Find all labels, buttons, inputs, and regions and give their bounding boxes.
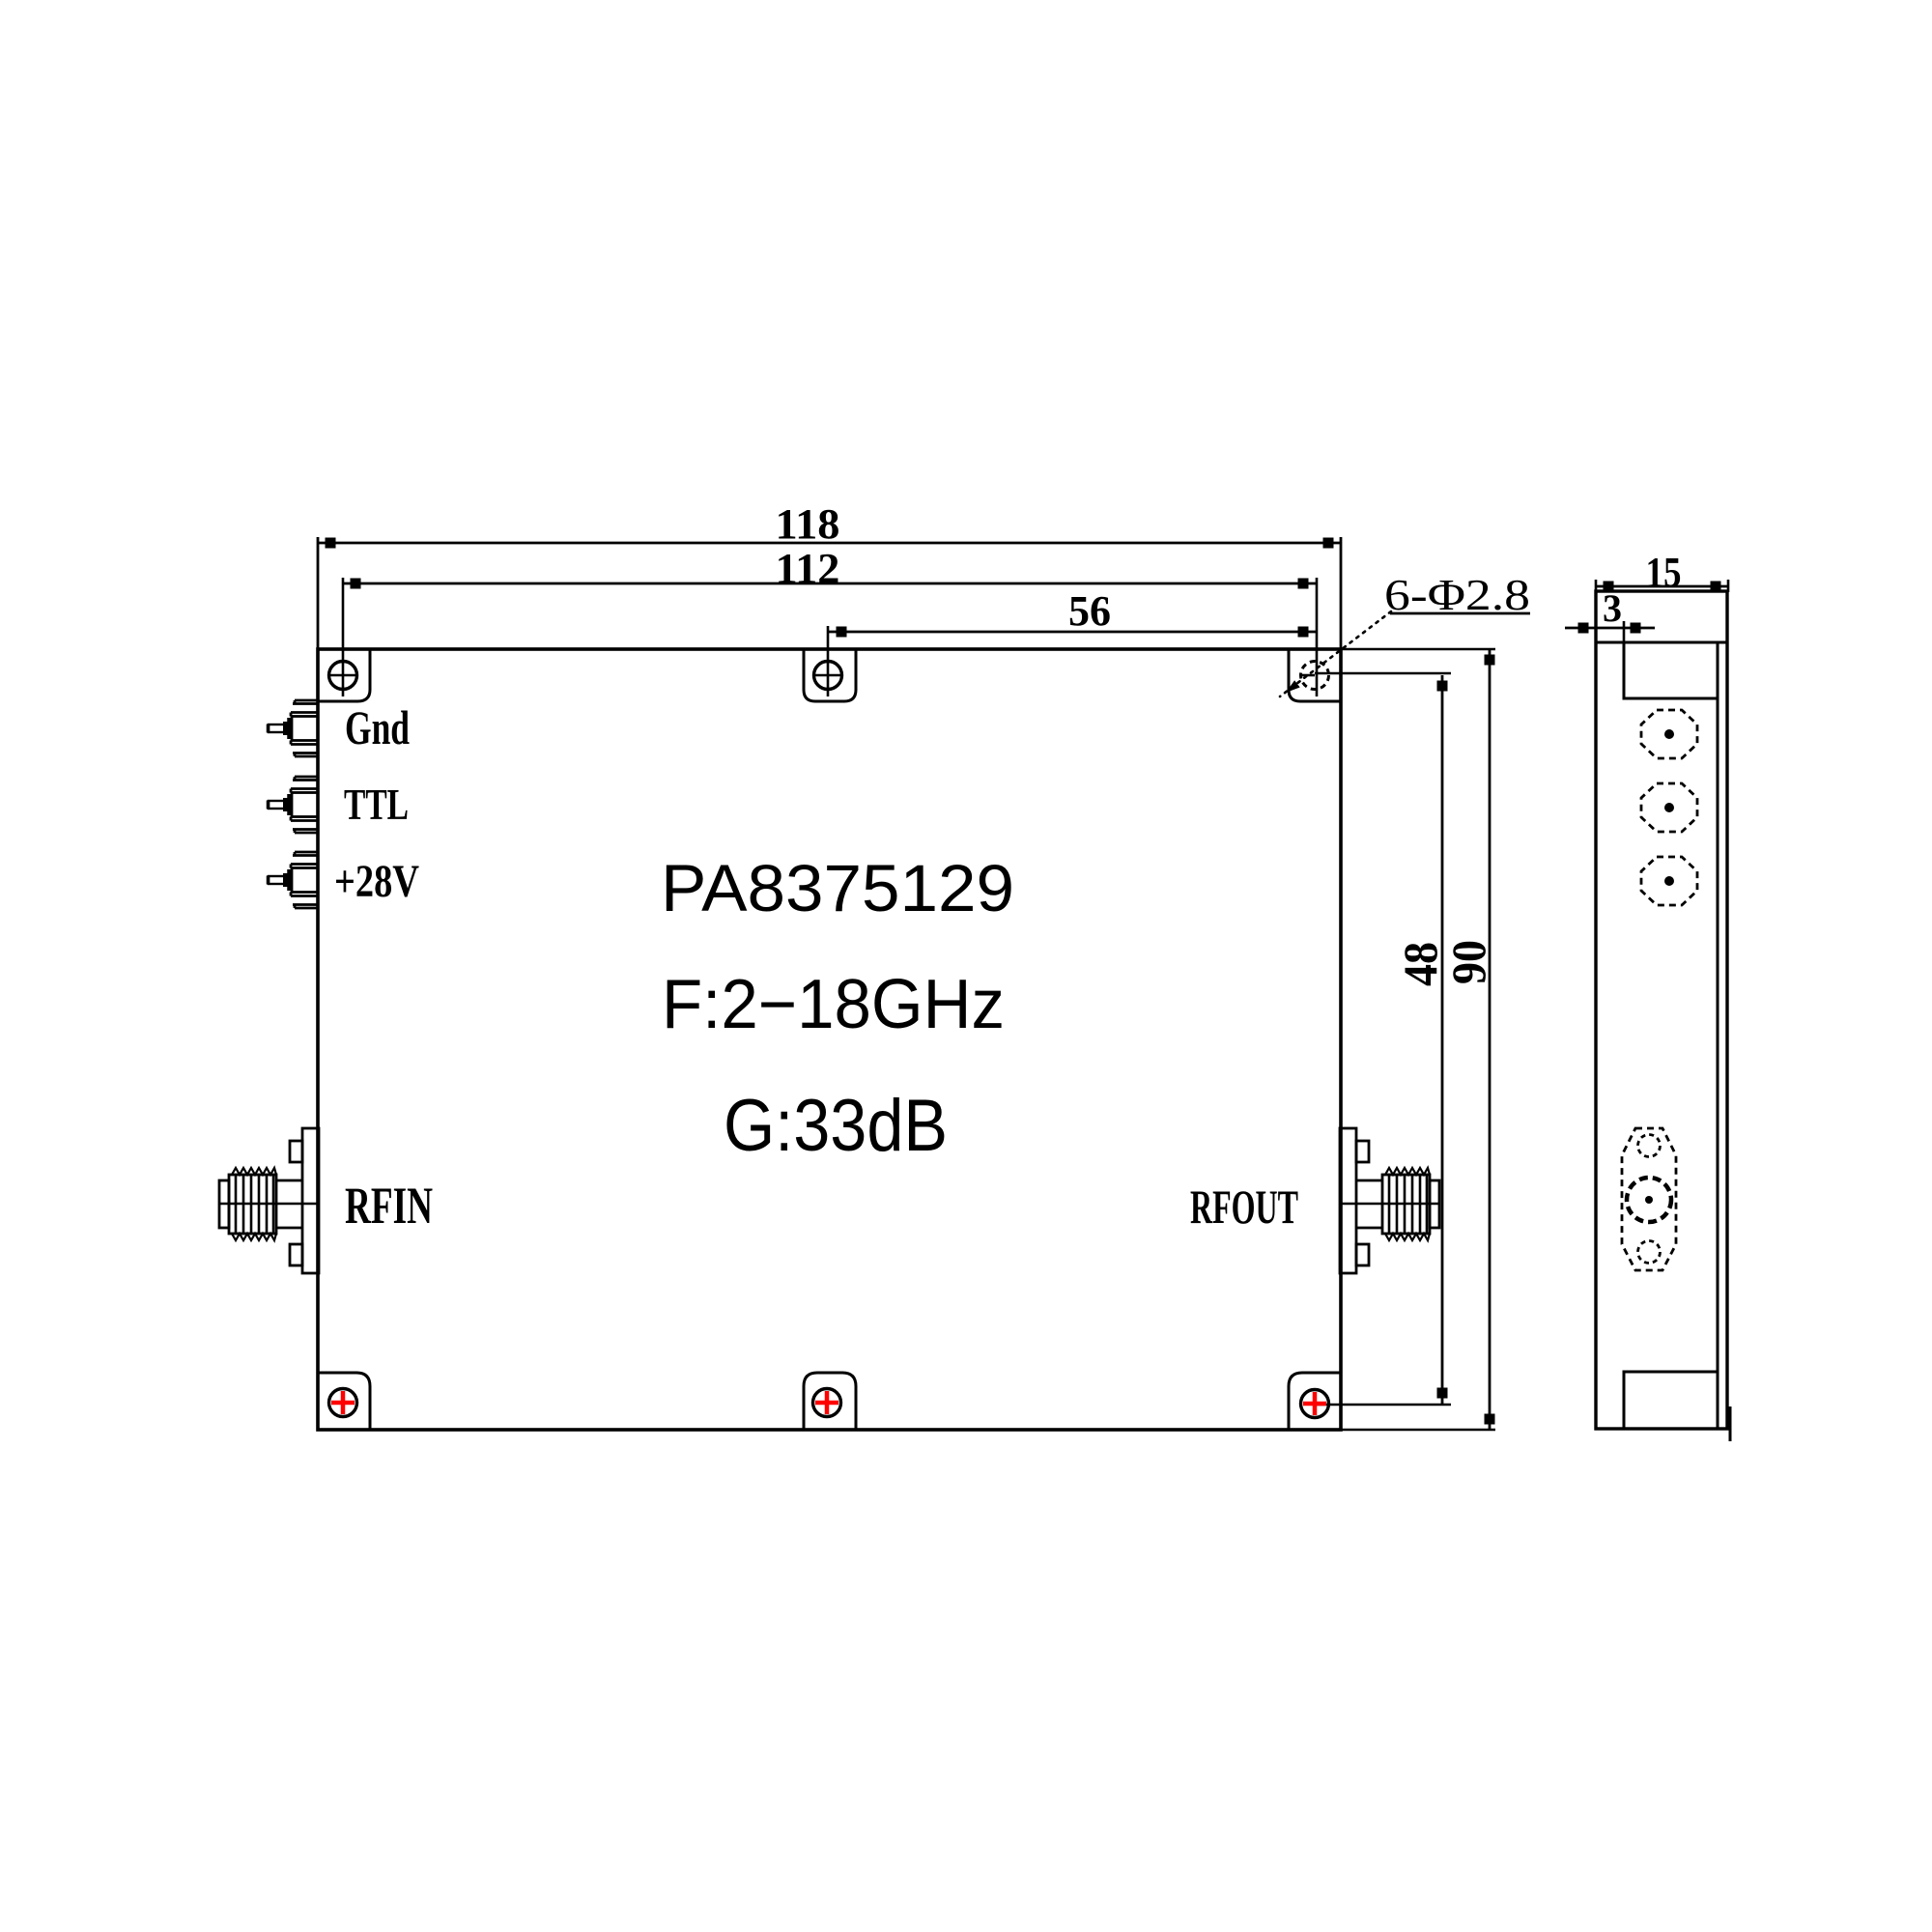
svg-text:PA8375129: PA8375129	[661, 851, 1014, 925]
svg-text:Gnd: Gnd	[345, 700, 410, 754]
svg-text:6-Φ2.8: 6-Φ2.8	[1384, 570, 1530, 619]
svg-text:F:2−18GHz: F:2−18GHz	[662, 966, 1005, 1043]
svg-text:118: 118	[776, 500, 840, 548]
svg-text:G:33dB: G:33dB	[724, 1085, 948, 1167]
svg-text:90: 90	[1441, 940, 1495, 984]
svg-text:56: 56	[1068, 587, 1111, 635]
svg-text:112: 112	[776, 545, 840, 592]
svg-text:RFIN: RFIN	[345, 1177, 433, 1235]
svg-text:TTL: TTL	[344, 780, 409, 829]
svg-text:15: 15	[1646, 549, 1682, 596]
svg-text:3: 3	[1603, 586, 1622, 630]
svg-text:RFOUT: RFOUT	[1190, 1179, 1298, 1234]
svg-text:+28V: +28V	[334, 856, 419, 907]
svg-text:48: 48	[1393, 942, 1447, 986]
